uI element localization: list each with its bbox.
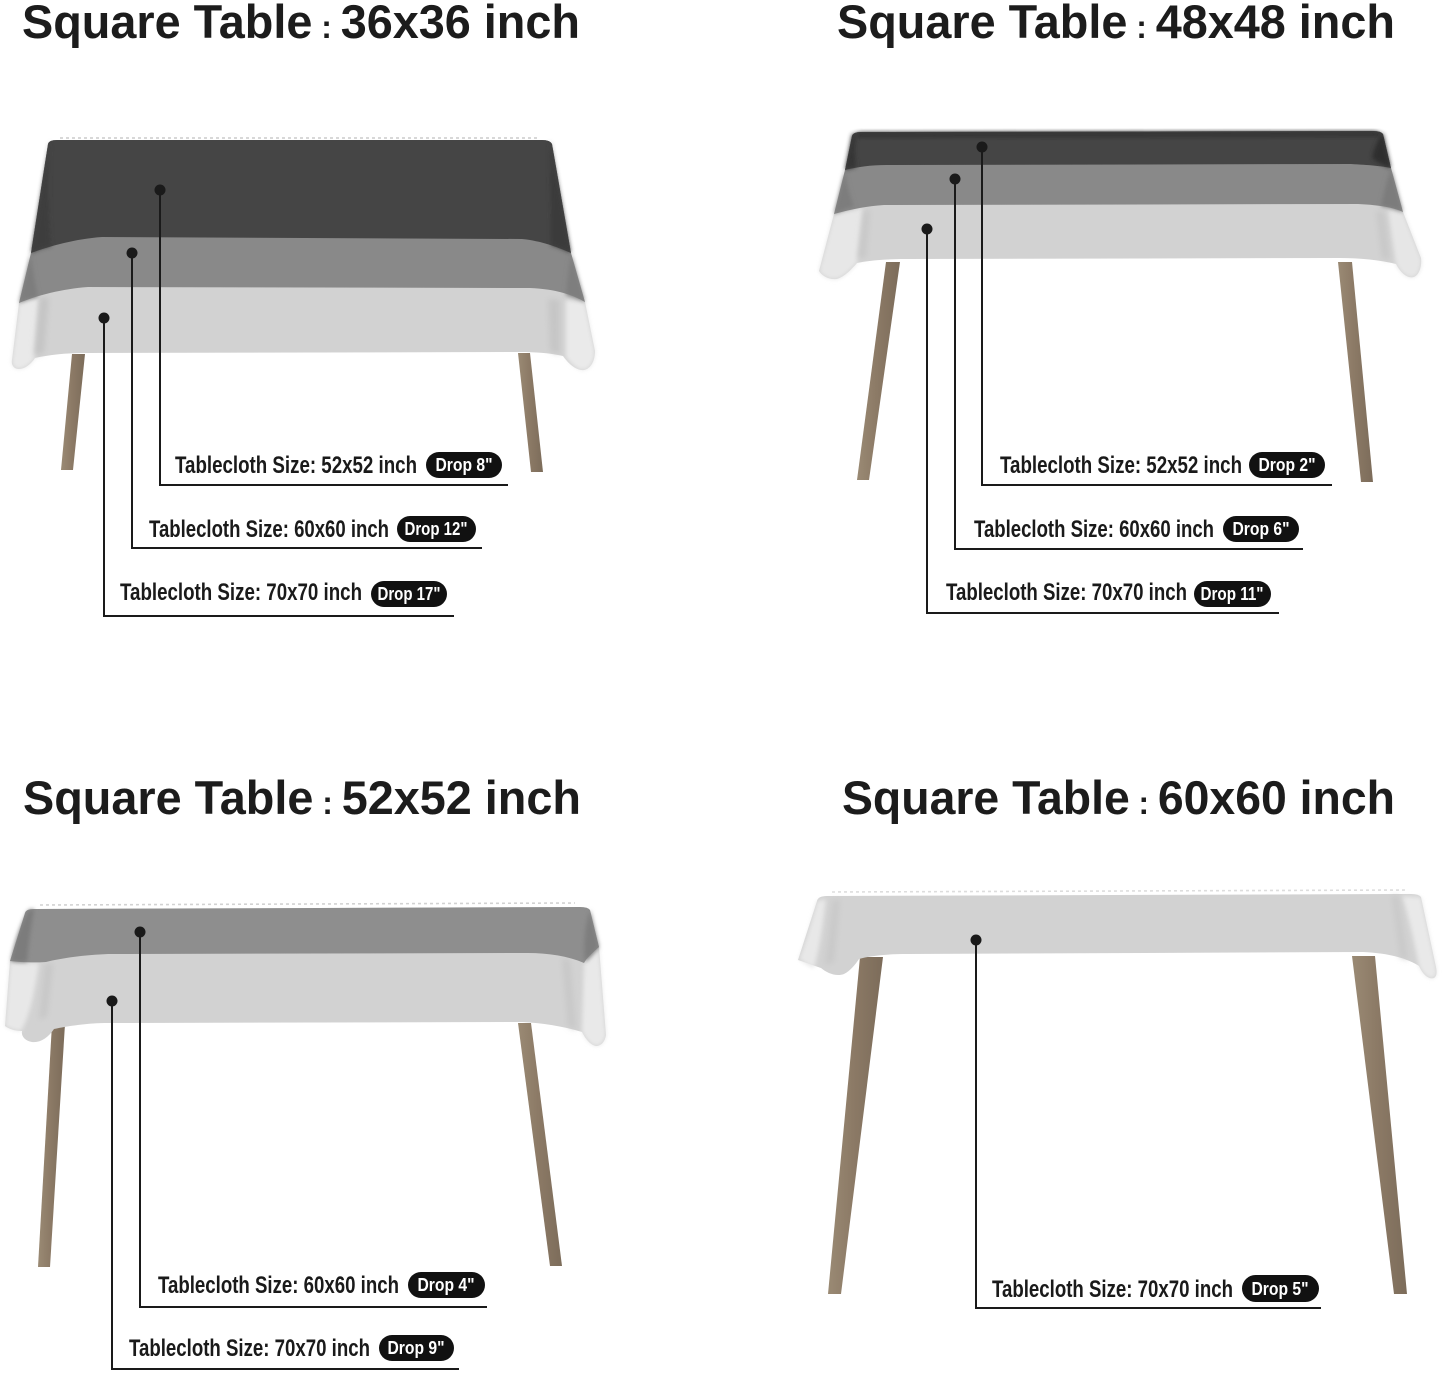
svg-text:Tablecloth Size: 70x70 inch: Tablecloth Size: 70x70 inch [120,579,362,606]
svg-text:Tablecloth Size: 60x60 inch: Tablecloth Size: 60x60 inch [974,516,1214,543]
svg-text:Drop 2": Drop 2" [1259,455,1316,475]
svg-text:Drop 5": Drop 5" [1252,1279,1309,1299]
svg-text:Tablecloth Size: 70x70 inch: Tablecloth Size: 70x70 inch [992,1276,1233,1303]
svg-text:Drop 12": Drop 12" [405,519,468,539]
svg-text:Drop 11": Drop 11" [1201,584,1264,604]
svg-text:Drop 6": Drop 6" [1233,519,1290,539]
svg-text:Drop 8": Drop 8" [436,455,493,475]
svg-text:Square Table : 48x48 inch: Square Table : 48x48 inch [837,0,1395,48]
svg-text:Tablecloth Size: 52x52 inch: Tablecloth Size: 52x52 inch [1000,452,1242,479]
svg-text:Tablecloth Size: 52x52 inch: Tablecloth Size: 52x52 inch [175,452,417,479]
svg-text:Drop 9": Drop 9" [388,1338,445,1358]
svg-text:Square Table : 52x52 inch: Square Table : 52x52 inch [23,771,581,824]
svg-text:Drop 17": Drop 17" [378,584,441,604]
svg-text:Tablecloth Size: 70x70 inch: Tablecloth Size: 70x70 inch [129,1335,370,1362]
svg-text:Square Table : 60x60 inch: Square Table : 60x60 inch [842,771,1395,824]
svg-text:Tablecloth Size: 60x60 inch: Tablecloth Size: 60x60 inch [149,516,389,543]
svg-text:Drop 4": Drop 4" [418,1275,475,1295]
svg-text:Tablecloth Size: 70x70 inch: Tablecloth Size: 70x70 inch [946,579,1187,606]
svg-text:Square Table : 36x36 inch: Square Table : 36x36 inch [22,0,580,48]
svg-text:Tablecloth Size: 60x60 inch: Tablecloth Size: 60x60 inch [158,1272,399,1299]
